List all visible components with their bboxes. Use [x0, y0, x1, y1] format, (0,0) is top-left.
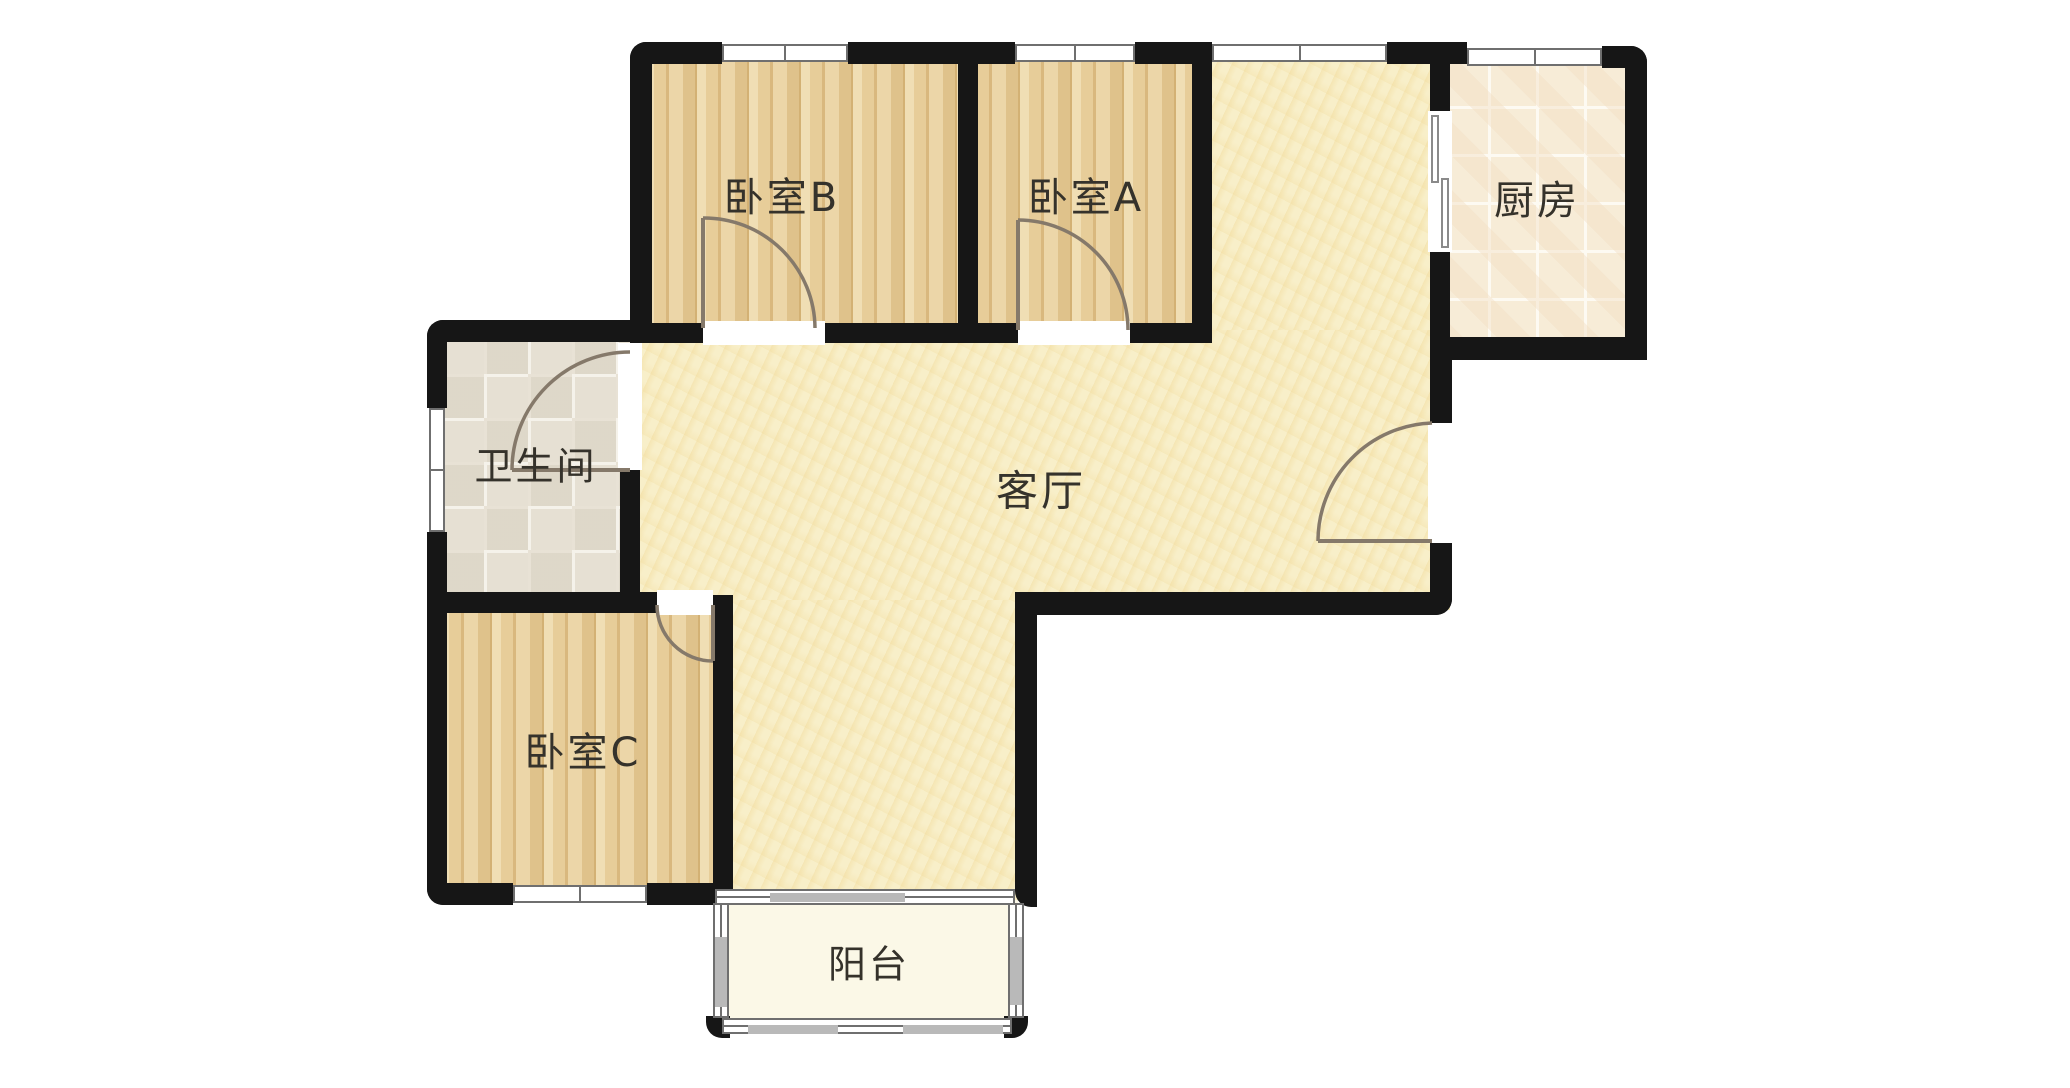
room-label-bedroom-b: 卧室B — [724, 165, 840, 223]
room-label-living-room: 客厅 — [996, 458, 1086, 519]
room-label-balcony: 阳台 — [828, 934, 910, 989]
floor-plan: 卧室B卧室A厨房客厅卫生间卧室C阳台 — [0, 0, 2070, 1088]
room-label-kitchen: 厨房 — [1494, 168, 1580, 226]
room-label-bathroom: 卫生间 — [474, 436, 597, 491]
room-label-bedroom-c: 卧室C — [525, 720, 642, 778]
labels-layer: 卧室B卧室A厨房客厅卫生间卧室C阳台 — [0, 0, 2070, 1088]
room-label-bedroom-a: 卧室A — [1028, 165, 1144, 223]
